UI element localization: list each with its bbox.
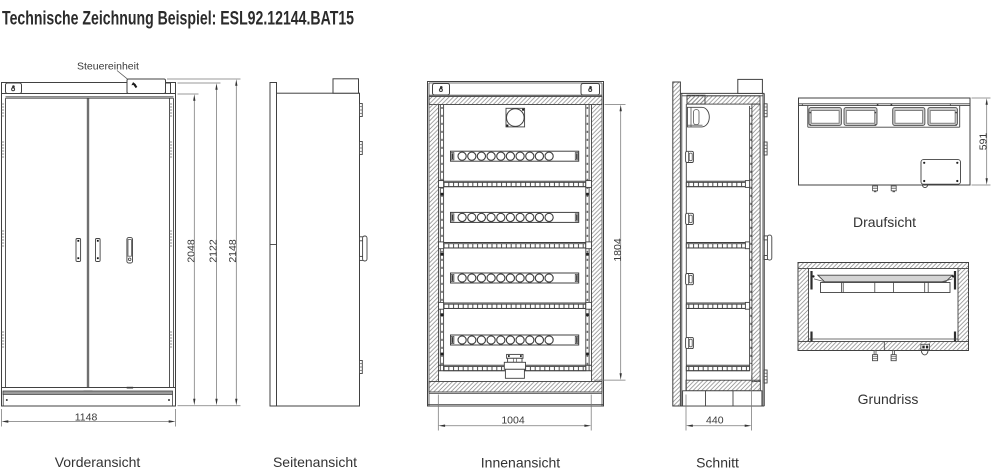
- svg-text:Vorderansicht: Vorderansicht: [55, 454, 141, 470]
- svg-text:Technische Zeichnung Beispiel:: Technische Zeichnung Beispiel: ESL92.121…: [2, 9, 354, 30]
- svg-text:Grundriss: Grundriss: [858, 391, 919, 407]
- svg-text:1148: 1148: [75, 411, 98, 423]
- svg-text:440: 440: [706, 414, 724, 426]
- svg-text:1004: 1004: [501, 414, 525, 426]
- svg-text:591: 591: [978, 133, 990, 151]
- svg-text:Draufsicht: Draufsicht: [853, 214, 916, 230]
- svg-text:Steuereinheit: Steuereinheit: [77, 61, 139, 73]
- svg-text:Seitenansicht: Seitenansicht: [273, 454, 357, 470]
- svg-text:Innenansicht: Innenansicht: [481, 455, 561, 471]
- svg-text:2148: 2148: [227, 239, 239, 263]
- svg-text:Schnitt: Schnitt: [696, 455, 739, 471]
- svg-text:2122: 2122: [207, 239, 219, 263]
- svg-text:2048: 2048: [185, 239, 197, 263]
- svg-text:1804: 1804: [612, 238, 624, 262]
